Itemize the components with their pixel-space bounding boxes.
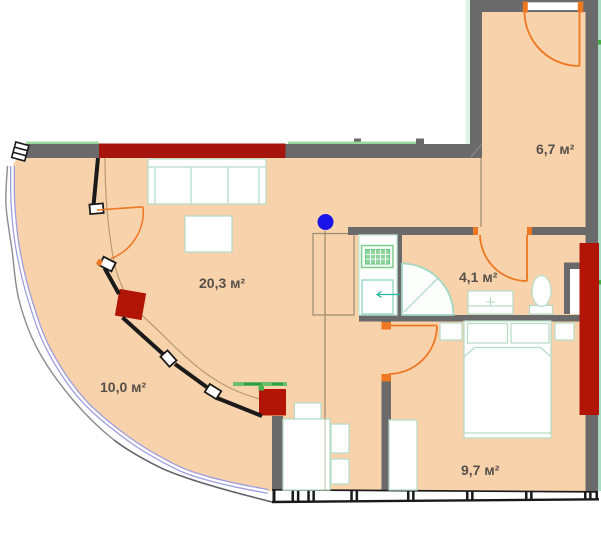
svg-text:20,3 м²: 20,3 м²	[199, 275, 245, 291]
svg-text:9,7 м²: 9,7 м²	[461, 462, 500, 478]
svg-text:6,7 м²: 6,7 м²	[536, 141, 575, 157]
svg-text:4,1 м²: 4,1 м²	[459, 269, 498, 285]
svg-text:10,0 м²: 10,0 м²	[100, 379, 146, 395]
